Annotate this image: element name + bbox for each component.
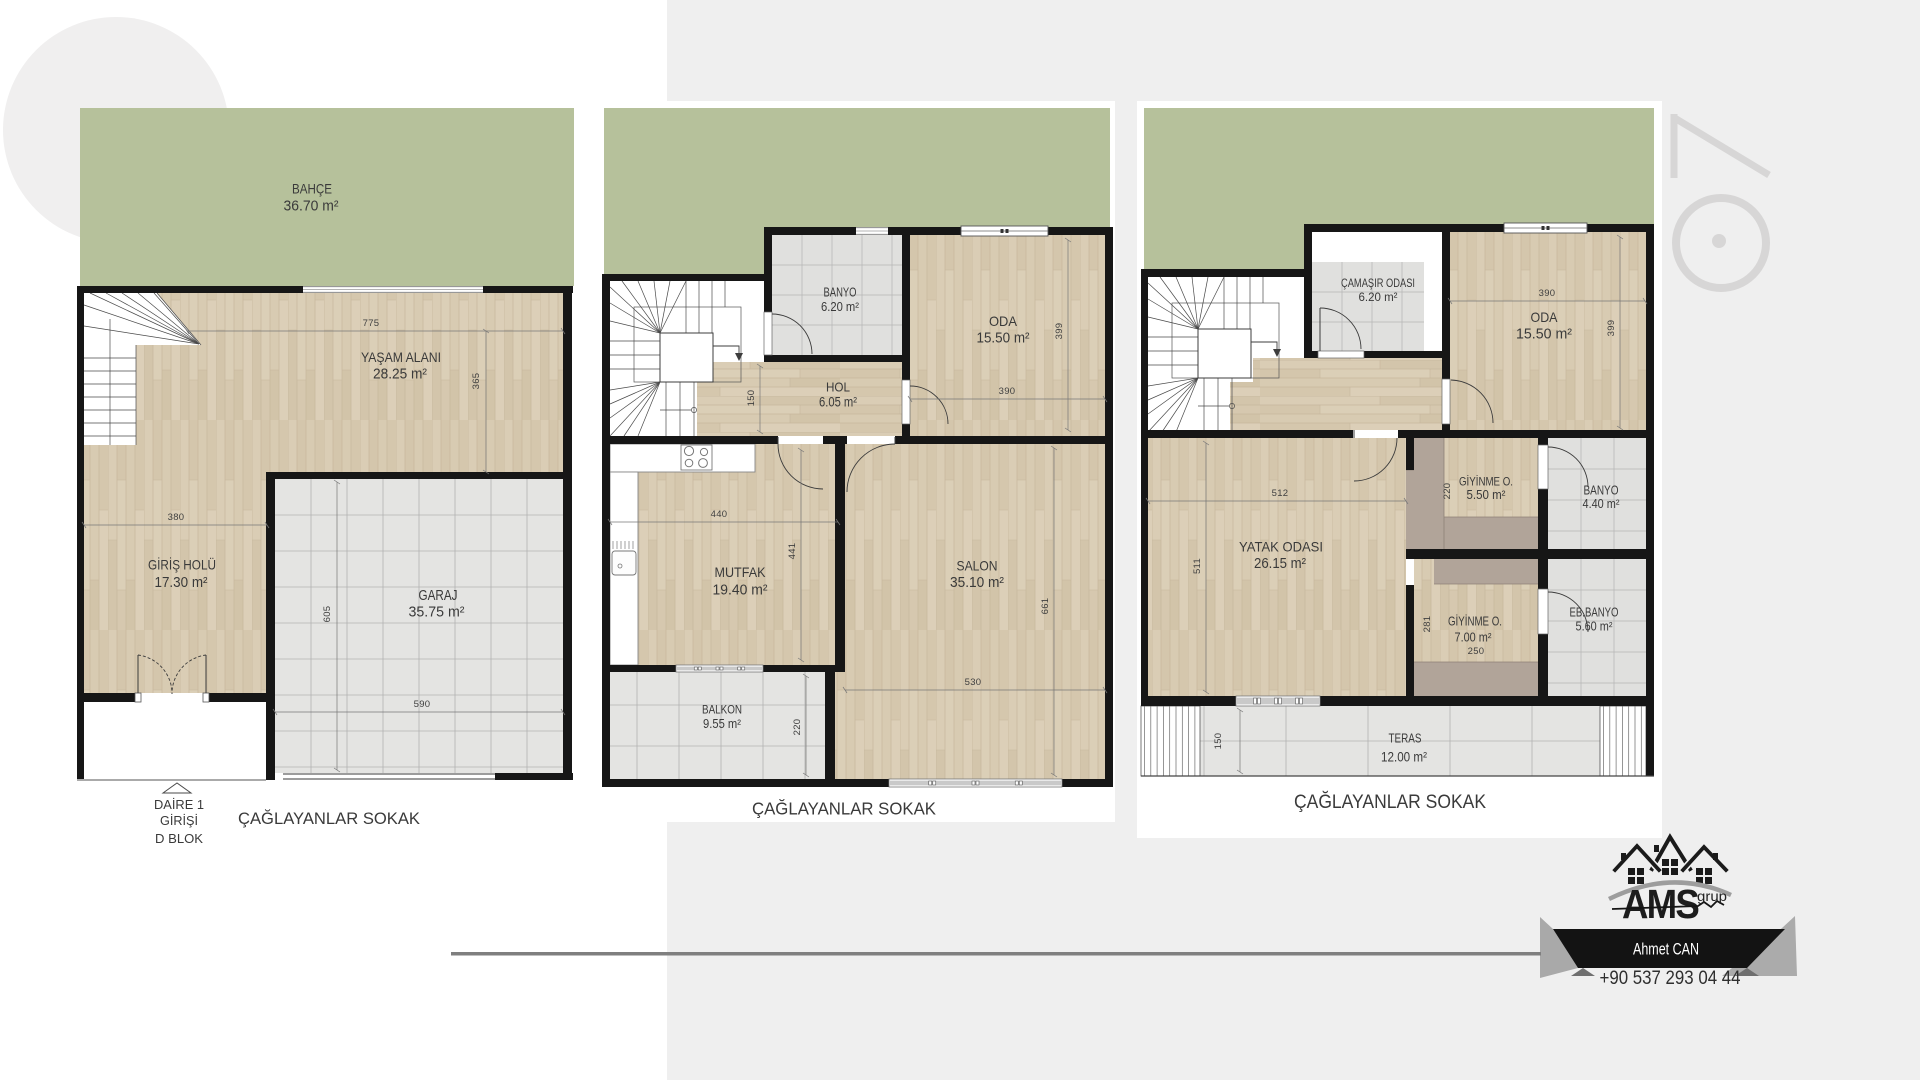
svg-text:YAŞAM ALANI: YAŞAM ALANI [361, 349, 441, 365]
svg-text:GARAJ: GARAJ [419, 588, 458, 604]
svg-text:GİYİNME O.: GİYİNME O. [1459, 475, 1513, 489]
svg-text:YATAK ODASI: YATAK ODASI [1239, 539, 1323, 555]
svg-text:ÇAMAŞIR ODASI: ÇAMAŞIR ODASI [1341, 278, 1415, 290]
svg-text:EB.BANYO: EB.BANYO [1570, 606, 1619, 620]
svg-text:605: 605 [322, 606, 333, 623]
svg-text:6.20 m²: 6.20 m² [821, 300, 859, 314]
svg-text:36.70 m²: 36.70 m² [284, 199, 339, 215]
svg-text:775: 775 [363, 318, 380, 329]
svg-text:DAİRE 1: DAİRE 1 [154, 797, 204, 812]
svg-text:6.05 m²: 6.05 m² [819, 395, 857, 410]
svg-text:AMS: AMS [1622, 881, 1699, 927]
svg-text:ÇAĞLAYANLAR SOKAK: ÇAĞLAYANLAR SOKAK [752, 798, 936, 819]
svg-text:5.60 m²: 5.60 m² [1576, 620, 1613, 634]
svg-text:Ahmet CAN: Ahmet CAN [1633, 941, 1699, 959]
svg-text:441: 441 [787, 543, 798, 560]
svg-text:TERAS: TERAS [1389, 731, 1422, 746]
svg-text:15.50 m²: 15.50 m² [977, 331, 1030, 347]
svg-text:380: 380 [168, 512, 185, 523]
svg-text:+90 537 293 04 44: +90 537 293 04 44 [1600, 968, 1741, 989]
svg-text:12.00 m²: 12.00 m² [1381, 750, 1427, 765]
svg-text:220: 220 [1442, 483, 1453, 500]
svg-text:365: 365 [471, 373, 482, 390]
svg-text:281: 281 [1422, 616, 1433, 633]
svg-text:BALKON: BALKON [702, 703, 742, 717]
svg-text:15.50 m²: 15.50 m² [1516, 327, 1572, 343]
svg-text:35.10 m²: 35.10 m² [950, 575, 1004, 591]
svg-text:150: 150 [746, 390, 757, 407]
svg-text:7.00 m²: 7.00 m² [1455, 630, 1493, 645]
svg-text:MUTFAK: MUTFAK [715, 564, 767, 580]
svg-text:17.30 m²: 17.30 m² [155, 575, 208, 591]
svg-text:GİRİŞİ: GİRİŞİ [160, 813, 198, 828]
svg-text:35.75 m²: 35.75 m² [409, 605, 465, 621]
svg-text:9.55 m²: 9.55 m² [703, 717, 741, 731]
svg-text:BANYO: BANYO [824, 286, 857, 300]
svg-text:390: 390 [1539, 288, 1556, 299]
svg-text:BAHÇE: BAHÇE [292, 181, 332, 197]
svg-text:511: 511 [1192, 558, 1203, 574]
svg-text:BANYO: BANYO [1584, 484, 1619, 498]
svg-text:220: 220 [792, 719, 803, 736]
svg-text:ODA: ODA [989, 313, 1018, 329]
svg-text:530: 530 [965, 677, 982, 688]
svg-text:150: 150 [1213, 733, 1224, 750]
svg-text:26.15 m²: 26.15 m² [1254, 556, 1306, 572]
svg-text:SALON: SALON [957, 558, 998, 574]
svg-text:399: 399 [1054, 323, 1065, 340]
svg-text:590: 590 [414, 699, 431, 710]
svg-text:250: 250 [1468, 646, 1485, 657]
svg-text:ODA: ODA [1531, 309, 1559, 325]
svg-text:399: 399 [1606, 320, 1617, 337]
svg-text:D BLOK: D BLOK [155, 831, 203, 846]
svg-text:661: 661 [1040, 598, 1051, 615]
svg-text:390: 390 [999, 386, 1016, 397]
svg-text:grup: grup [1697, 888, 1727, 904]
svg-text:GİRİŞ HOLÜ: GİRİŞ HOLÜ [148, 556, 216, 573]
svg-text:ÇAĞLAYANLAR SOKAK: ÇAĞLAYANLAR SOKAK [238, 809, 420, 828]
svg-text:ÇAĞLAYANLAR SOKAK: ÇAĞLAYANLAR SOKAK [1294, 791, 1486, 813]
svg-text:6.20 m²: 6.20 m² [1359, 290, 1398, 304]
svg-text:HOL: HOL [826, 380, 850, 395]
svg-text:4.40 m²: 4.40 m² [1583, 497, 1620, 511]
svg-text:5.50 m²: 5.50 m² [1467, 488, 1506, 502]
svg-text:19.40 m²: 19.40 m² [713, 583, 768, 599]
svg-text:512: 512 [1272, 488, 1289, 499]
svg-text:GİYİNME O.: GİYİNME O. [1448, 615, 1502, 629]
svg-text:28.25 m²: 28.25 m² [373, 367, 427, 383]
svg-text:440: 440 [711, 509, 728, 520]
